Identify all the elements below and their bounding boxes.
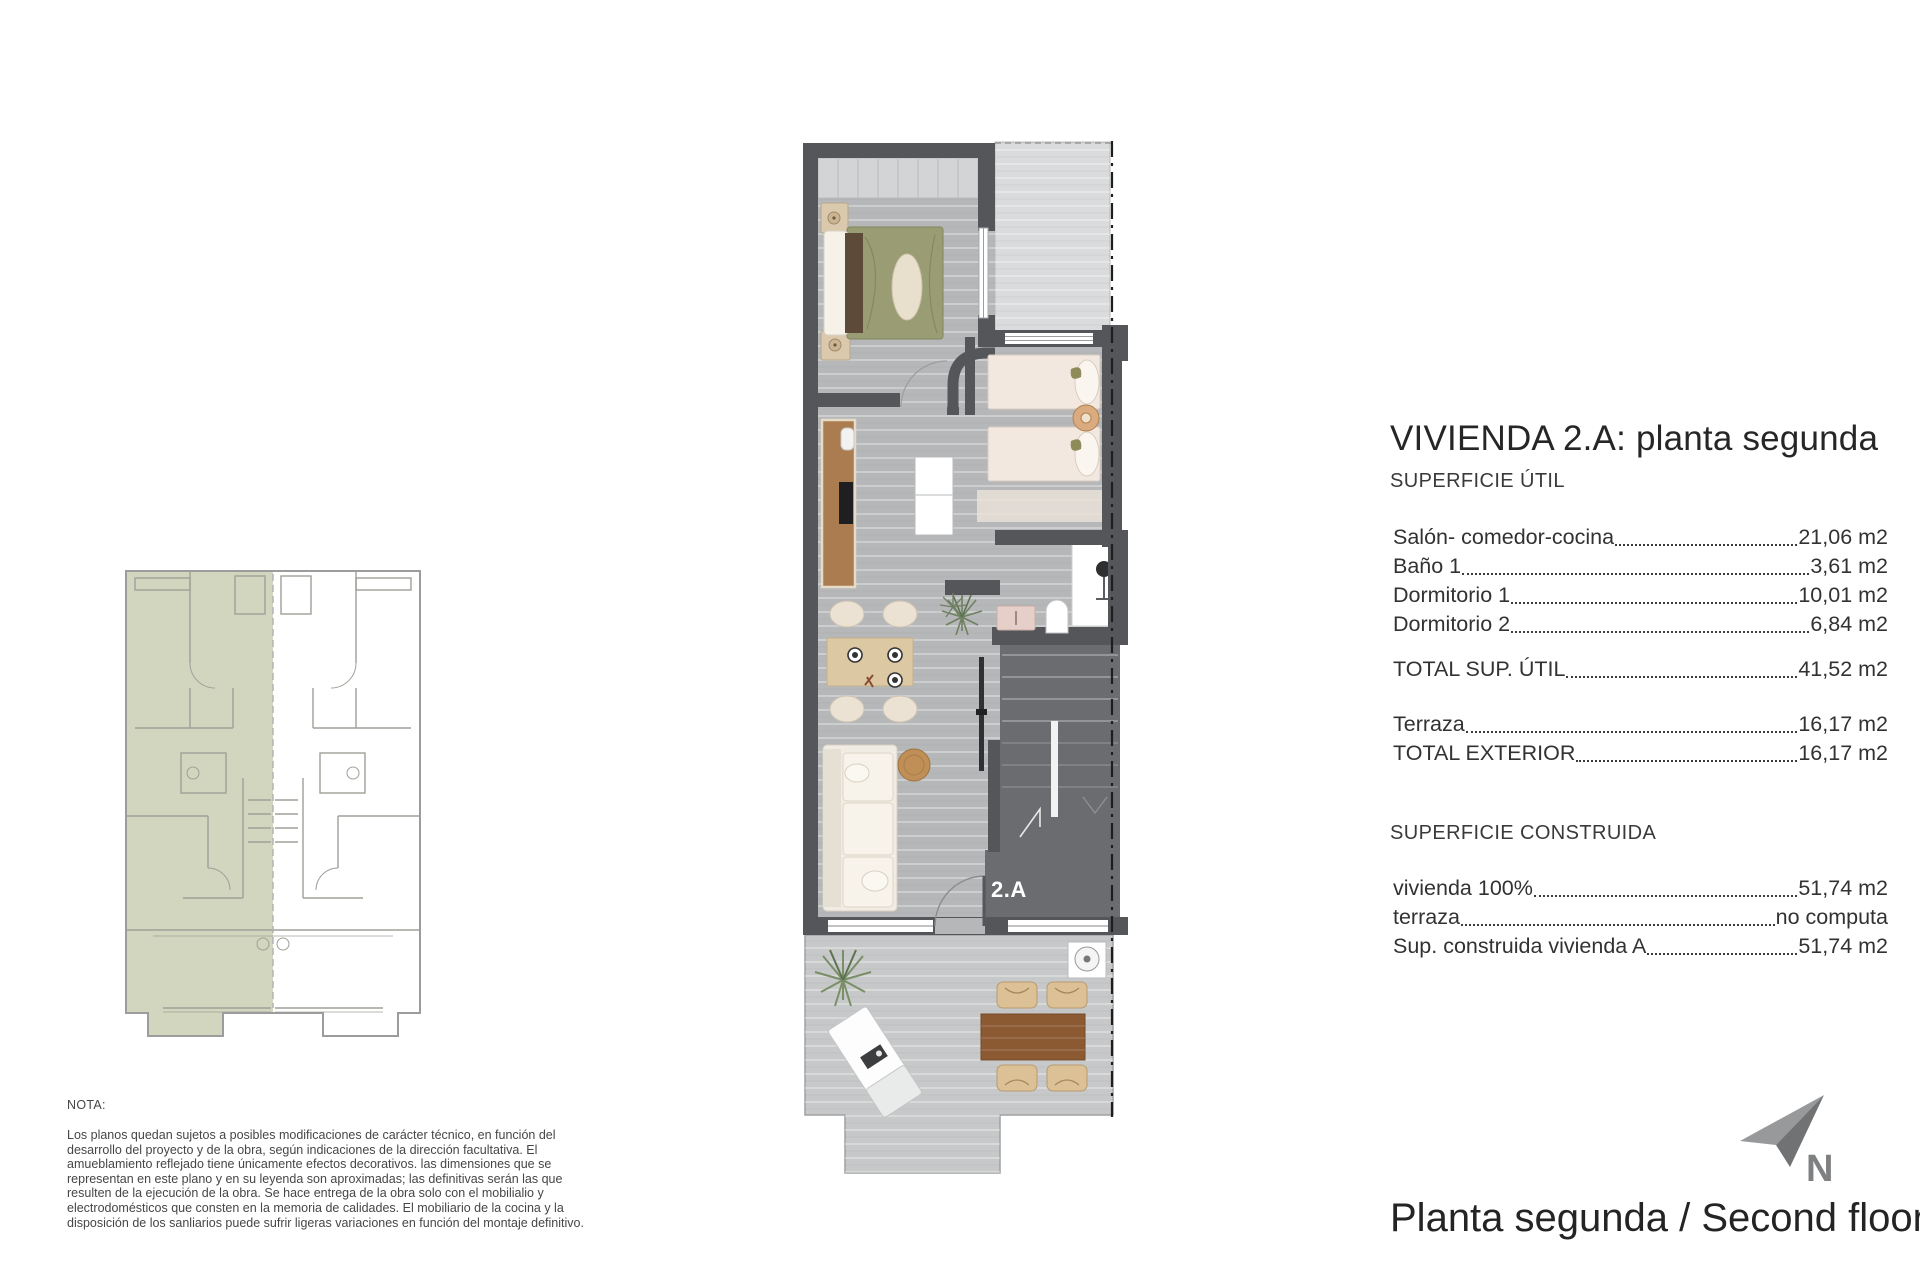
leader-dots: [1576, 760, 1797, 762]
side-table: [898, 749, 930, 781]
measurements-panel: VIVIENDA 2.A: planta segunda SUPERFICIE …: [1390, 419, 1888, 979]
total-exterior-row: TOTAL EXTERIOR 16,17 m2: [1393, 739, 1888, 765]
row-label: terraza: [1393, 906, 1460, 929]
area-row-dorm2: Dormitorio 2 6,84 m2: [1393, 610, 1888, 636]
row-label: vivienda 100%: [1393, 877, 1533, 900]
leader-dots: [1462, 573, 1809, 575]
leader-dots: [1647, 953, 1797, 955]
plan-sheet: 2.A VIVIENDA 2.A:: [0, 0, 1920, 1280]
row-label: Salón- comedor-cocina: [1393, 526, 1614, 549]
row-value: 16,17 m2: [1798, 713, 1888, 736]
row-label: Terraza: [1393, 713, 1465, 736]
superficie-util-heading: SUPERFICIE ÚTIL: [1390, 470, 1565, 493]
row-label: TOTAL EXTERIOR: [1393, 742, 1575, 765]
rug: [977, 490, 1113, 522]
sup-construida-row: Sup. construida vivienda A 51,74 m2: [1393, 932, 1888, 958]
floor-plan: 2.A: [795, 137, 1135, 1182]
area-row-salon: Salón- comedor-cocina 21,06 m2: [1393, 523, 1888, 549]
row-label: TOTAL SUP. ÚTIL: [1393, 658, 1565, 681]
total-util-row: TOTAL SUP. ÚTIL 41,52 m2: [1393, 655, 1888, 681]
terraza-construida-row: terraza no computa: [1393, 903, 1888, 929]
row-value: 10,01 m2: [1798, 584, 1888, 607]
sofa: [823, 745, 897, 911]
floor-caption: Planta segunda / Second floor: [1390, 1196, 1920, 1241]
leader-dots: [1534, 895, 1797, 897]
leader-dots: [1466, 731, 1798, 733]
leader-dots: [1566, 676, 1797, 678]
row-label: Dormitorio 1: [1393, 584, 1510, 607]
row-value: no computa: [1776, 906, 1888, 929]
row-value: 21,06 m2: [1798, 526, 1888, 549]
double-bed: [824, 227, 943, 339]
row-value: 3,61 m2: [1810, 555, 1888, 578]
leader-dots: [1461, 924, 1775, 926]
row-label: Dormitorio 2: [1393, 613, 1510, 636]
row-value: 16,17 m2: [1798, 742, 1888, 765]
row-label: Sup. construida vivienda A: [1393, 935, 1646, 958]
bedroom1-furniture: [821, 203, 943, 360]
row-value: 41,52 m2: [1798, 658, 1888, 681]
key-plan-highlight-unit-a: [127, 572, 273, 1035]
leader-dots: [1615, 544, 1797, 546]
note-heading: NOTA:: [67, 1098, 584, 1112]
terrace-dining-set: [981, 982, 1087, 1091]
row-label: Baño 1: [1393, 555, 1461, 578]
row-value: 51,74 m2: [1798, 877, 1888, 900]
note-body: Los planos quedan sujetos a posibles mod…: [67, 1128, 584, 1230]
page-title: VIVIENDA 2.A: planta segunda: [1390, 419, 1878, 459]
key-plan: [123, 568, 423, 1040]
area-row-dorm1: Dormitorio 1 10,01 m2: [1393, 581, 1888, 607]
terraza-row: Terraza 16,17 m2: [1393, 710, 1888, 736]
barbecue-icon: [1068, 942, 1106, 978]
unit-label: 2.A: [991, 877, 1027, 902]
leader-dots: [1511, 631, 1809, 633]
leader-dots: [1511, 602, 1797, 604]
wardrobe: [818, 158, 978, 198]
terrace-upper: [995, 142, 1112, 332]
row-value: 6,84 m2: [1810, 613, 1888, 636]
vivienda-100-row: vivienda 100% 51,74 m2: [1393, 874, 1888, 900]
superficie-construida-heading: SUPERFICIE CONSTRUIDA: [1390, 822, 1656, 845]
row-value: 51,74 m2: [1798, 935, 1888, 958]
north-label: N: [1806, 1148, 1833, 1191]
note-block: NOTA: Los planos quedan sujetos a posibl…: [67, 1098, 584, 1230]
area-row-bano: Baño 1 3,61 m2: [1393, 552, 1888, 578]
